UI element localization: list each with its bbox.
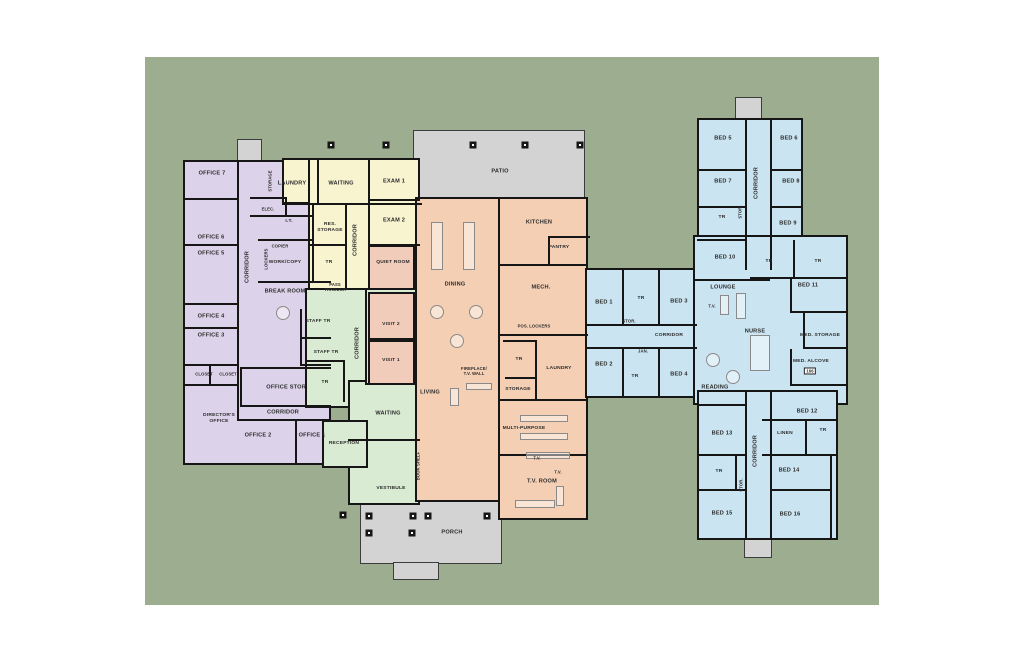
wall-segment [343,360,345,402]
room-label: OFFICE 7 [199,171,226,178]
room-label: T.V. ROOM [527,479,557,486]
zone-porch-stub [393,562,439,580]
wall-segment [805,419,807,455]
room-label: CORRIDOR [353,224,360,256]
wall-segment [285,197,287,217]
room-label: PATIO [491,169,508,176]
wall-segment [368,244,420,246]
room-label: T.V. [554,469,561,474]
wall-segment [498,334,588,336]
room-label: QUIET ROOM [376,260,410,266]
wall-segment [295,419,297,465]
room-label: BED 7 [714,179,731,186]
wall-segment [368,158,370,290]
furniture-rect [720,295,729,315]
room-label: TR [815,259,822,265]
room-label: CORRIDOR [245,251,252,283]
room-label: JAN. [638,348,648,353]
room-label: STAFF TR [314,350,339,356]
room-label: EXAM 2 [383,218,405,225]
room-label: CORRIDOR [267,410,299,417]
wall-segment [183,384,239,386]
room-label: BOOK SHELF [415,452,420,480]
column-marker [577,142,584,149]
room-label: WAITING [375,411,400,418]
room-label: CORRIDOR [655,333,683,339]
wall-segment [240,367,331,369]
wall-segment [697,404,745,406]
wall-segment [697,454,745,456]
room-label: BED 14 [779,468,800,475]
wall-segment [770,169,803,171]
room-label: MULTI-PURPOSE [503,426,546,432]
room-label: FIREPLACE/ T.V. WALL [459,366,489,376]
room-label: BED 1 [595,300,612,307]
zone-patio [413,130,585,200]
room-label: PORCH [441,530,462,537]
room-label: BED 9 [779,221,796,228]
column-marker [366,530,373,537]
room-label: BED 6 [780,136,797,143]
room-label: LOUNGE [710,285,735,292]
room-label: MED. STORAGE [800,333,840,339]
room-label: STORAGE [267,170,272,191]
room-label: BED 5 [714,136,731,143]
wall-segment [658,268,660,326]
room-label: WAITING [328,181,353,188]
wall-segment [830,454,832,540]
wall-segment [183,364,239,366]
room-label: VISIT 1 [382,358,400,364]
wall-segment [250,215,312,217]
room-label: OFFICE 6 [198,235,225,242]
furniture-rect [450,388,459,406]
room-label: RECEPTION [329,441,359,447]
wall-segment [790,277,792,313]
room-label: WORK/COPY [269,260,302,266]
room-label: COPIER [272,243,289,248]
room-label: VESTIBULE [376,486,405,492]
wall-segment [622,268,624,326]
column-marker [410,513,417,520]
room-label: STOR. [737,205,742,218]
wall-segment [585,324,697,326]
room-label: BED 4 [670,372,687,379]
room-label: LIVING [420,390,440,397]
wall-segment [312,204,314,282]
room-label: OFFICE 3 [198,333,225,340]
wall-segment [282,203,422,205]
room-label: I.T. [285,219,292,225]
room-label: NURSE [745,329,766,336]
wall-segment [790,384,848,386]
wall-segment [535,340,537,400]
room-label: MECH. [531,285,550,292]
wall-segment [770,206,803,208]
room-label: RES. STORAGE [315,222,345,234]
room-label: MED. ALCOVE [793,359,829,365]
room-label: STOR. [738,478,743,491]
wall-segment [250,197,287,199]
wall-segment [240,367,242,407]
room-label: KITCHEN [526,220,552,227]
room-label: TR [516,357,523,363]
wall-segment [803,311,805,349]
wall-segment [310,244,347,246]
room-label: LAUNDRY [546,366,571,372]
room-label: TR [322,380,329,386]
furniture-rect [520,433,568,440]
room-label: CORRIDOR [753,435,760,467]
room-label: PASS THROUGH [319,282,351,292]
wall-segment [503,340,537,342]
room-label: BED 10 [715,255,736,262]
wall-segment [237,419,331,421]
room-label: BED 15 [712,511,733,518]
room-label: OFFICE 5 [198,251,225,258]
wall-segment [803,347,848,349]
column-marker [522,142,529,149]
room-label: TR [766,259,773,265]
zone-quiet-room [368,245,415,290]
room-label: OFFICE 4 [198,314,225,321]
room-label: POS. LOCKERS [518,323,551,328]
column-marker [484,513,491,520]
floor-plan-canvas: PATIOPORCHOFFICE 7OFFICE 6OFFICE 5OFFICE… [0,0,1024,663]
room-label: OFFICE STOR. [266,385,307,392]
room-label: BED 11 [798,283,818,290]
column-marker [366,513,373,520]
furniture-rect [520,415,568,422]
wall-segment [183,244,239,246]
zone-visit-2-room [368,292,415,340]
wall-segment [745,390,747,540]
furniture-rect [736,293,746,319]
room-label: LOCKERS [263,248,268,269]
furniture-round [430,305,444,319]
room-label: ELEC. [262,206,275,211]
column-marker [328,142,335,149]
wall-segment [790,349,792,385]
room-label: STORAGE [505,387,531,393]
wall-segment [770,390,772,540]
room-label: LAUNDRY [278,181,307,188]
wall-segment [498,264,588,266]
wall-segment [183,303,239,305]
room-label: TR [638,296,645,302]
room-label: CLOSET [219,371,237,376]
room-label: BED 13 [712,431,733,438]
room-label: STAFF TR [306,319,331,325]
column-marker [470,142,477,149]
wall-segment [300,337,331,339]
room-label: BED 3 [670,299,687,306]
room-label: TR [719,215,726,221]
wall-segment [368,199,420,201]
room-label: LINEN [777,431,793,437]
room-label: DINING [445,282,466,289]
room-label: TR [716,469,723,475]
room-label: T.V. [708,303,715,308]
wall-segment [258,239,314,241]
wall-segment [793,240,795,278]
room-label: OFFICE 2 [245,433,272,440]
wall-segment [762,419,838,421]
wall-segment [548,236,590,238]
column-marker [409,530,416,537]
wall-segment [658,347,660,398]
column-marker [340,512,347,519]
furniture-rect [556,486,564,506]
room-label: DIRECTOR'S OFFICE [201,413,237,425]
room-label: BED 2 [595,362,612,369]
column-marker [383,142,390,149]
furniture-round [726,370,740,384]
wall-segment [697,169,745,171]
room-label: PANTRY [549,245,570,251]
wall-segment [770,489,830,491]
room-label: TR [326,260,333,266]
room-label: OFFICE 1 [299,433,326,440]
wall-segment [183,327,239,329]
wall-segment [745,118,747,270]
wall-segment [505,377,537,379]
wall-segment [770,118,772,270]
room-label: CLOSET [195,371,213,376]
zone-porch [360,500,502,564]
room-label: TR [820,428,827,434]
room-label: TR [632,374,639,380]
furniture-round [469,305,483,319]
room-label: EXAM 1 [383,179,405,186]
wall-segment [240,405,331,407]
zone-common-east [498,197,588,520]
wall-segment [317,158,319,204]
furniture-rect [515,500,555,508]
wall-segment [693,279,770,281]
column-marker [425,513,432,520]
wall-segment [305,360,345,362]
wall-segment [183,198,239,200]
zone-common-west [415,197,505,502]
room-label: VISIT 2 [382,322,400,328]
room-label: BED 12 [797,409,818,416]
room-label: BREAK ROOM [265,289,306,296]
wall-segment [697,239,745,241]
wall-segment [750,277,848,279]
furniture-rect [466,383,492,390]
room-label: BED 8 [782,179,799,186]
furniture-rect [463,222,475,270]
room-label: STOR. [622,318,635,323]
room-label: T.V. [533,455,540,460]
wall-segment [762,454,838,456]
furniture-round [450,334,464,348]
room-label: CORRIDOR [355,327,362,359]
wall-segment [300,364,331,366]
room-label: 166 [804,367,816,374]
wall-segment [345,204,347,290]
zone-office-entry-stub [237,139,262,162]
wall-segment [498,399,588,401]
room-label: READING [701,385,728,392]
furniture-round [276,306,290,320]
furniture-rect [750,335,770,371]
furniture-rect [431,222,443,270]
wall-segment [790,311,848,313]
furniture-round [706,353,720,367]
wall-segment [622,347,624,398]
room-label: CORRIDOR [754,167,761,199]
zone-right-wing-bottom-stub [744,538,772,558]
wall-segment [735,454,737,490]
room-label: BED 16 [780,512,801,519]
zone-right-wing-top-stub [735,97,762,120]
